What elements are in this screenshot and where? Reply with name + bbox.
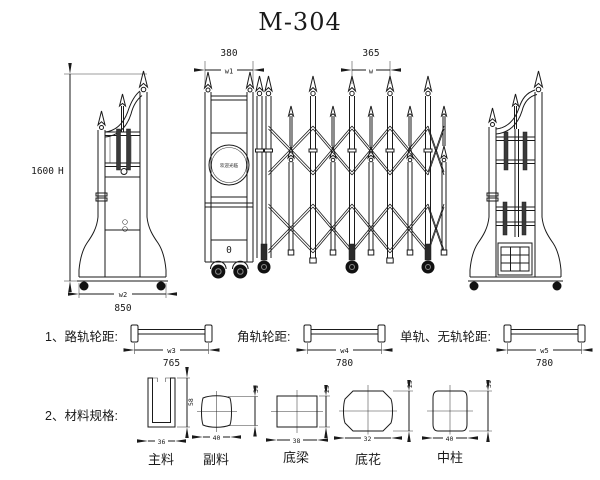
spear-finial-icon — [331, 106, 336, 116]
spear-finial-icon — [513, 94, 519, 106]
profile-height: 31 — [485, 380, 493, 388]
spear-finial-icon — [98, 111, 105, 125]
material-section-label: 2、材料规格: — [45, 408, 118, 423]
base-width-value: 850 — [114, 303, 131, 314]
profile-height: 25 — [323, 385, 331, 393]
profile-center-post: 31 40 中柱 — [427, 380, 493, 465]
profile-name: 中柱 — [437, 450, 463, 465]
gate-wheel-icon — [422, 261, 435, 274]
clamp-plate — [503, 202, 507, 235]
gate-wheel-icon — [346, 261, 359, 274]
clamp-plate — [504, 132, 508, 170]
spear-finial-icon — [247, 72, 254, 88]
axle-drawing: w3 765 — [131, 325, 212, 369]
pitch-value: 365 — [362, 48, 379, 59]
profile-height: 25 — [406, 380, 414, 388]
gauge-label-3: 单轨、无轨轮距: — [400, 330, 491, 344]
zero-label: 0 — [226, 245, 232, 256]
profile-name: 主料 — [148, 452, 174, 467]
gauge-dim-label-3: w5 — [540, 347, 548, 355]
profile-width: 38 — [293, 437, 301, 445]
height-dim-label: H — [58, 166, 64, 177]
caster-wheel-icon — [157, 282, 166, 291]
spear-finial-icon — [256, 76, 263, 91]
profile-width: 40 — [213, 434, 221, 442]
spear-finial-icon — [489, 108, 496, 122]
profile-width: 32 — [364, 435, 372, 443]
profile-bottom-beam: 25 38 底梁 — [271, 385, 331, 465]
profile-height: 58 — [187, 398, 195, 406]
drive-wheel-icon — [233, 265, 247, 279]
clamp-plate — [117, 129, 121, 170]
battery-box — [498, 243, 532, 275]
profile-name: 底花 — [355, 452, 381, 467]
left-end-frame: 1600 H — [31, 71, 168, 314]
gauge-dim-label-2: w4 — [340, 347, 348, 355]
spear-finial-icon — [205, 72, 212, 88]
drawing-sheet: M-304 1600 H — [0, 0, 600, 480]
gauge-dim-label-1: w3 — [167, 347, 175, 355]
gauge-label-1: 1、路轨轮距: — [45, 329, 118, 344]
cad-canvas: M-304 1600 H — [0, 0, 600, 480]
caster-wheel-icon — [553, 282, 562, 291]
caster-wheel-icon — [80, 282, 89, 291]
profile-name: 副料 — [203, 452, 229, 467]
bolt-icon — [121, 169, 127, 175]
gauge-dim-value-3: 780 — [536, 358, 553, 369]
axle-drawing: w4 780 — [304, 325, 385, 369]
spear-finial-icon — [120, 94, 126, 106]
profile-secondary-material: 31 40 副料 — [197, 385, 260, 467]
spear-finial-icon — [310, 76, 317, 91]
profile-name: 底梁 — [283, 450, 309, 465]
clamp-plate — [523, 132, 527, 170]
spear-finial-icon — [140, 71, 148, 87]
profile-main-material: 58 36 主料 — [148, 378, 195, 467]
profile-bottom-flower: 25 32 底花 — [339, 380, 414, 467]
spear-finial-icon — [408, 106, 413, 116]
right-end-frame — [468, 71, 563, 291]
clamp-plate — [127, 129, 131, 170]
material-spec-row: 2、材料规格: 58 36 主料 31 40 副料 — [45, 378, 493, 467]
lock-icon — [123, 220, 128, 225]
profile-width: 36 — [158, 438, 166, 446]
axle-drawing: w5 780 — [504, 325, 585, 369]
spear-finial-icon — [369, 106, 374, 116]
spear-finial-icon — [425, 76, 432, 91]
gate-wheel-icon — [258, 261, 271, 274]
sign-text: 欢迎光临 — [220, 162, 238, 169]
gauge-dim-value-1: 765 — [163, 358, 180, 369]
head-width-value: 380 — [220, 48, 237, 59]
head-width-label: w1 — [225, 68, 233, 76]
spear-finial-icon — [441, 146, 447, 158]
caster-wheel-icon — [470, 282, 479, 291]
profile-width: 40 — [446, 435, 454, 443]
spear-finial-icon — [442, 106, 447, 116]
clamp-plate — [522, 202, 526, 235]
gauge-label-2: 角轨轮距: — [237, 330, 290, 344]
spear-finial-icon — [289, 106, 294, 116]
profile-height: 31 — [252, 385, 260, 393]
lock-icon — [123, 227, 128, 232]
spear-finial-icon — [535, 71, 543, 87]
base-width-label: w2 — [119, 291, 127, 299]
track-gauge-row: 1、路轨轮距: w3 765 角轨轮距: w4 780 单轨、无轨轮距: — [45, 325, 585, 369]
drive-wheel-icon — [211, 265, 225, 279]
spear-finial-icon — [265, 76, 272, 91]
accordion-section — [256, 76, 448, 274]
drawing-title: M-304 — [258, 8, 342, 36]
height-dim-value: 1600 — [31, 166, 54, 177]
gauge-dim-value-2: 780 — [336, 358, 353, 369]
